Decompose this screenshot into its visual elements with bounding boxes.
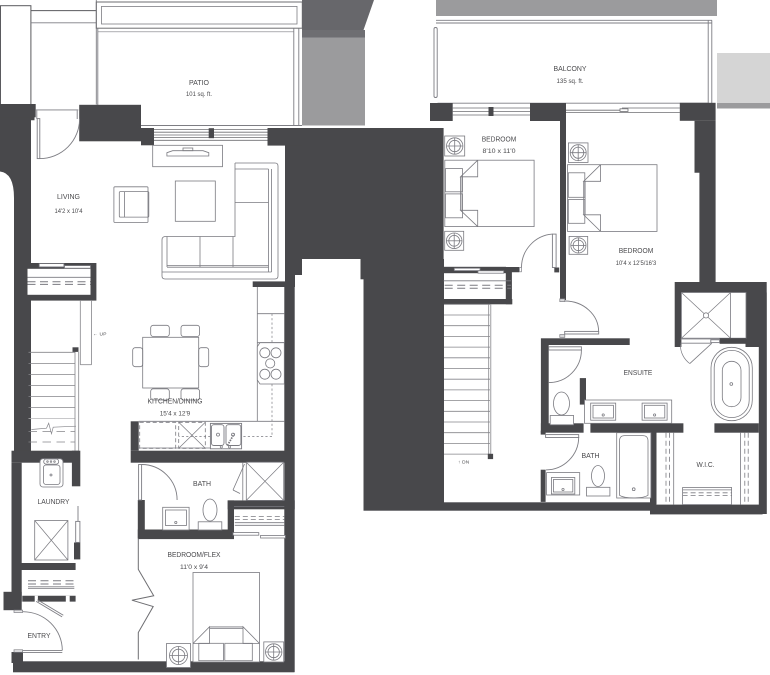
svg-text:LAUNDRY: LAUNDRY [38, 497, 70, 506]
svg-text:BEDROOM: BEDROOM [619, 246, 654, 255]
svg-text:135 sq. ft.: 135 sq. ft. [557, 78, 584, 85]
svg-text:↑ DN: ↑ DN [458, 460, 470, 466]
svg-text:BEDROOM/FLEX: BEDROOM/FLEX [168, 550, 221, 559]
svg-text:ENTRY: ENTRY [28, 631, 51, 640]
svg-text:KITCHEN/DINING: KITCHEN/DINING [148, 397, 203, 406]
svg-text:BATH: BATH [582, 451, 600, 460]
svg-text:LIVING: LIVING [57, 192, 80, 201]
svg-text:BATH: BATH [193, 479, 211, 488]
svg-text:8'10 x 11'0: 8'10 x 11'0 [483, 148, 517, 155]
svg-text:← UP: ← UP [93, 332, 107, 338]
svg-text:BALCONY: BALCONY [554, 64, 587, 73]
svg-text:15'4 x 12'9: 15'4 x 12'9 [160, 411, 191, 418]
svg-text:PATIO: PATIO [189, 78, 209, 87]
svg-text:W.I.C.: W.I.C. [697, 460, 715, 469]
svg-text:ENSUITE: ENSUITE [624, 368, 653, 377]
svg-text:11'0 x 9'4: 11'0 x 9'4 [180, 564, 209, 571]
svg-text:10'4 x 12'5/16'3: 10'4 x 12'5/16'3 [616, 260, 657, 267]
svg-text:14'2 x 10'4: 14'2 x 10'4 [55, 208, 84, 215]
svg-text:BEDROOM: BEDROOM [482, 135, 517, 144]
svg-text:101 sq. ft.: 101 sq. ft. [186, 91, 212, 98]
